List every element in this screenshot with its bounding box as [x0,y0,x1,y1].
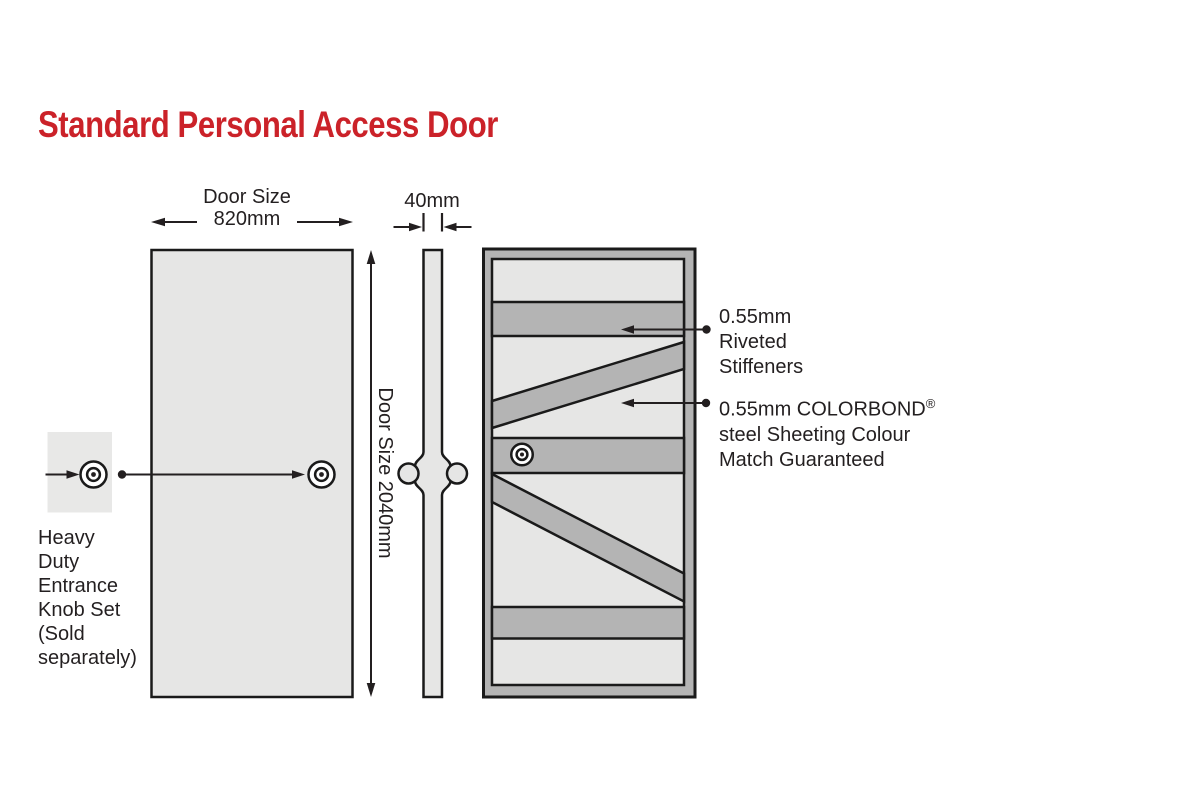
side-view-door-edge [399,250,468,697]
width-dimension-label: Door Size 820mm [167,186,327,230]
thickness-dimension-arrows [394,213,472,232]
front-door-knob-icon [309,462,335,488]
sheeting-annotation: 0.55mm COLORBOND® steel Sheeting Colour … [719,391,935,473]
door-spec-diagram: Standard Personal Access Door Door Size … [0,0,1200,800]
back-knob-icon [511,444,533,466]
knob-set-line: Heavy [38,526,137,550]
height-dimension-label: Door Size 2040mm [373,373,397,573]
sheeting-brand-text: 0.55mm COLORBOND [719,399,926,421]
stiffeners-annotation-line: Stiffeners [719,355,803,380]
knob-set-line: separately) [38,646,137,670]
knob-set-line: (Sold [38,622,137,646]
knob-set-annotation: Heavy Duty Entrance Knob Set (Sold separ… [38,526,137,670]
stiffeners-annotation-line: 0.55mm [719,305,803,330]
side-knob-right-icon [447,464,467,484]
knob-set-line: Entrance [38,574,137,598]
knob-set-line: Duty [38,550,137,574]
thickness-dimension-label: 40mm [390,190,474,213]
registered-trademark-symbol: ® [926,396,936,411]
back-view-door [484,249,696,697]
side-knob-left-icon [399,464,419,484]
sheeting-annotation-line3: Match Guaranteed [719,448,935,473]
sheeting-annotation-line2: steel Sheeting Colour [719,423,935,448]
knob-set-line: Knob Set [38,598,137,622]
page-title: Standard Personal Access Door [38,104,498,146]
stiffeners-annotation: 0.55mm Riveted Stiffeners [719,305,803,380]
width-dimension-value: 820mm [167,208,327,230]
front-knob-sample-icon [81,462,107,488]
width-dimension-caption: Door Size [167,186,327,208]
stiffeners-annotation-line: Riveted [719,330,803,355]
horizontal-stiffener-bottom [492,607,684,639]
sheeting-annotation-line1: 0.55mm COLORBOND® [719,391,935,423]
side-door-silhouette [415,250,451,697]
horizontal-stiffener-top [492,302,684,336]
